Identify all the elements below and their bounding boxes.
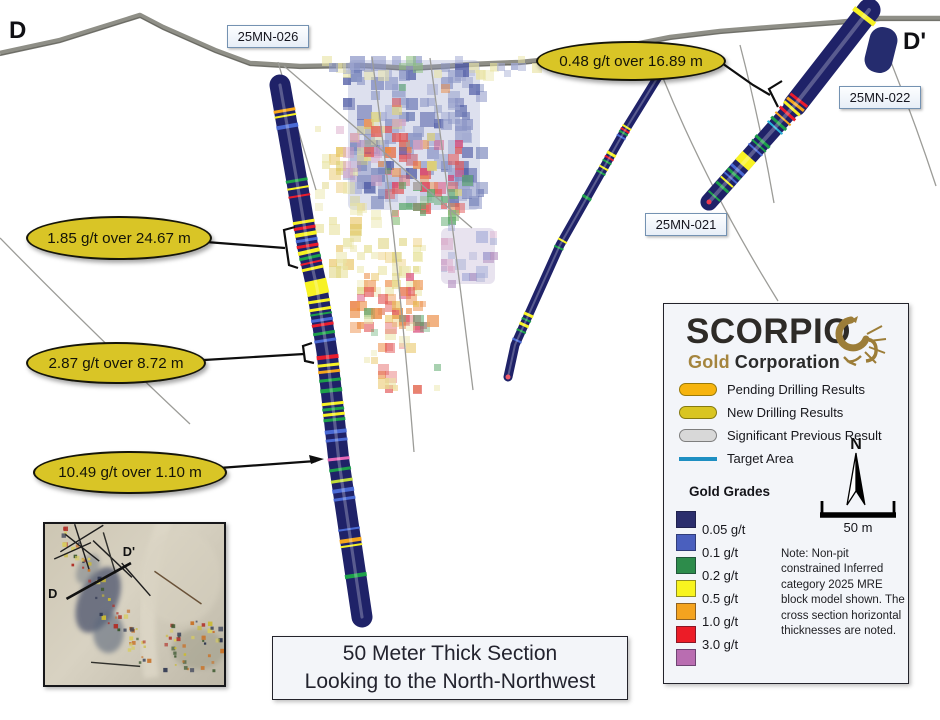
legend-swatch-pill <box>679 383 717 396</box>
legend-swatch-pill <box>679 429 717 442</box>
drillhole-25MN-021 <box>506 72 662 380</box>
grade-scale-label: 0.05 g/t <box>702 522 745 537</box>
casing-stub <box>862 24 900 75</box>
callout-leader-line <box>719 61 770 95</box>
legend-item-label: Pending Drilling Results <box>727 382 865 397</box>
callout-intercept-4-text: 0.48 g/t over 16.89 m <box>559 53 703 70</box>
legend-item: New Drilling Results <box>679 401 894 424</box>
company-subtitle-gold: Gold <box>688 352 730 372</box>
callout-intercept-1-text: 1.85 g/t over 24.67 m <box>47 230 191 247</box>
legend-swatch-line <box>679 457 717 461</box>
company-subtitle-rest: Corporation <box>735 352 840 372</box>
grade-scale-swatch <box>676 557 696 574</box>
legend-swatch-pill <box>679 406 717 419</box>
inset-label-d-prime: D' <box>123 544 135 559</box>
gold-grades-title: Gold Grades <box>689 484 770 499</box>
callout-intercept-1: 1.85 g/t over 24.67 m <box>26 216 212 260</box>
drillhole-label-25mn-026: 25MN-026 <box>227 25 309 48</box>
scale-bar: 50 m <box>814 498 906 540</box>
section-caption: 50 Meter Thick Section Looking to the No… <box>272 636 628 700</box>
drill-tip-marker <box>706 199 711 204</box>
grade-scale-label: 0.1 g/t <box>702 545 738 560</box>
grade-scale-label: 0.5 g/t <box>702 591 738 606</box>
callout-intercept-2: 2.87 g/t over 8.72 m <box>26 342 206 384</box>
drillhole-label-25mn-022: 25MN-022 <box>839 86 921 109</box>
callout-leader-line <box>206 242 285 248</box>
scorpion-icon <box>827 312 889 370</box>
caption-line1: 50 Meter Thick Section <box>343 640 557 668</box>
grade-scale-swatch <box>676 511 696 528</box>
drill-tip-marker <box>506 375 511 380</box>
callout-intercept-3: 10.49 g/t over 1.10 m <box>33 451 227 494</box>
legend-item-label: New Drilling Results <box>727 405 843 420</box>
grade-scale-swatch <box>676 649 696 666</box>
drill-trace-line <box>889 57 936 186</box>
grade-scale-label: 3.0 g/t <box>702 637 738 652</box>
grade-scale-swatch <box>676 626 696 643</box>
callout-intercept-4: 0.48 g/t over 16.89 m <box>536 41 726 81</box>
company-subtitle: GoldCorporation <box>688 352 840 373</box>
inset-label-d: D <box>48 586 57 601</box>
drill-trace-line <box>0 238 190 424</box>
company-logo: SCORPIO GoldCorporation <box>664 312 908 376</box>
leader-arrowhead <box>309 455 324 464</box>
callout-intercept-3-text: 10.49 g/t over 1.10 m <box>58 464 202 481</box>
cross-section-figure: D D' 25MN-026 25MN-022 25MN-021 1.85 g/t… <box>0 0 940 720</box>
callout-leader-line <box>204 354 304 360</box>
interval-bracket <box>769 81 782 107</box>
grade-scale-swatch <box>676 603 696 620</box>
grade-scale-swatch <box>676 534 696 551</box>
north-label: N <box>850 436 862 453</box>
legend-panel: SCORPIO GoldCorporation Pending Drilling… <box>663 303 909 684</box>
callout-intercept-2-text: 2.87 g/t over 8.72 m <box>48 355 183 372</box>
legend-note: Note: Non-pit constrained Inferred categ… <box>781 547 909 639</box>
section-label-d: D <box>9 17 26 45</box>
callout-leader-line <box>219 461 316 468</box>
legend-item: Pending Drilling Results <box>679 378 894 401</box>
grade-scale-swatch <box>676 580 696 597</box>
grade-scale-label: 0.2 g/t <box>702 568 738 583</box>
scale-bar-label: 50 m <box>844 520 873 535</box>
caption-line2: Looking to the North-Northwest <box>305 668 596 696</box>
block-model <box>315 56 542 394</box>
inset-map-canvas: D D' <box>45 524 224 685</box>
legend-item-label: Target Area <box>727 451 794 466</box>
inset-location-map: D D' <box>43 522 226 687</box>
interval-bracket <box>303 343 314 363</box>
section-label-d-prime: D' <box>903 28 926 56</box>
drillhole-label-25mn-021: 25MN-021 <box>645 213 727 236</box>
grade-scale-label: 1.0 g/t <box>702 614 738 629</box>
